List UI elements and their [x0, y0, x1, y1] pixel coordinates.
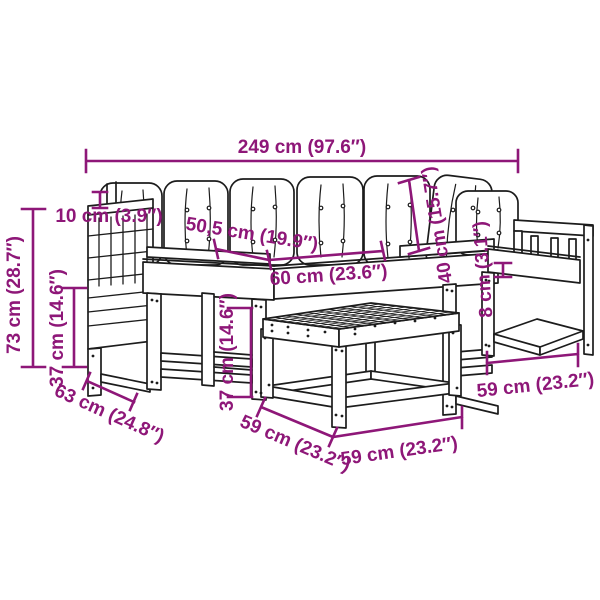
table-width-label: 59 cm (23.2″): [339, 433, 459, 470]
table-height-label: 37 cm (14.6″): [217, 293, 238, 411]
coffee-table: [261, 303, 461, 428]
dimension-diagram-canvas: 249 cm (97.6″) 73 cm (28.7″) 37 cm (14.6…: [0, 0, 600, 600]
overall-height-label: 73 cm (28.7″): [4, 236, 25, 354]
chair-width-label: 59 cm (23.2″): [476, 369, 595, 402]
seat-height-label: 37 cm (14.6″): [47, 269, 68, 387]
overall-width-label: 249 cm (97.6″): [238, 137, 366, 158]
dimension-diagram: 249 cm (97.6″) 73 cm (28.7″) 37 cm (14.6…: [0, 0, 600, 600]
back-cushion-thickness-label: 10 cm (3.9″): [55, 206, 162, 227]
dim-overall-height-line: [22, 209, 45, 367]
